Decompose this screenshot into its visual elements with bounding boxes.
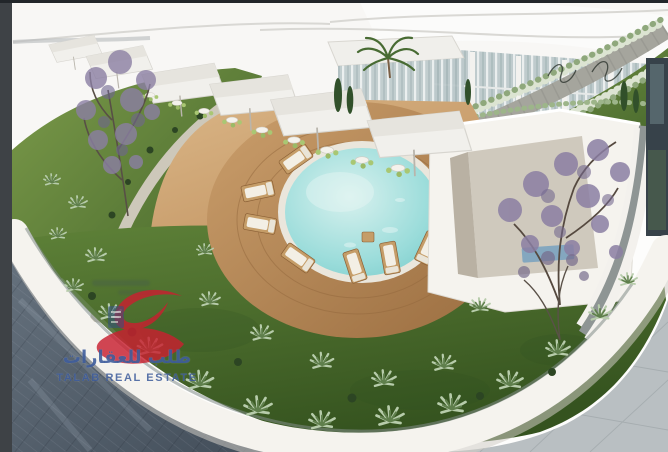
side-table — [362, 232, 374, 242]
render-scene — [0, 0, 668, 452]
slab-green-reflection — [648, 150, 666, 230]
pool-highlight — [306, 172, 374, 212]
slab-glass — [650, 64, 664, 124]
property-photo: طلب للعقارات TALAB REAL ESTATE — [0, 0, 668, 452]
left-border — [0, 0, 12, 452]
top-border — [0, 0, 668, 3]
